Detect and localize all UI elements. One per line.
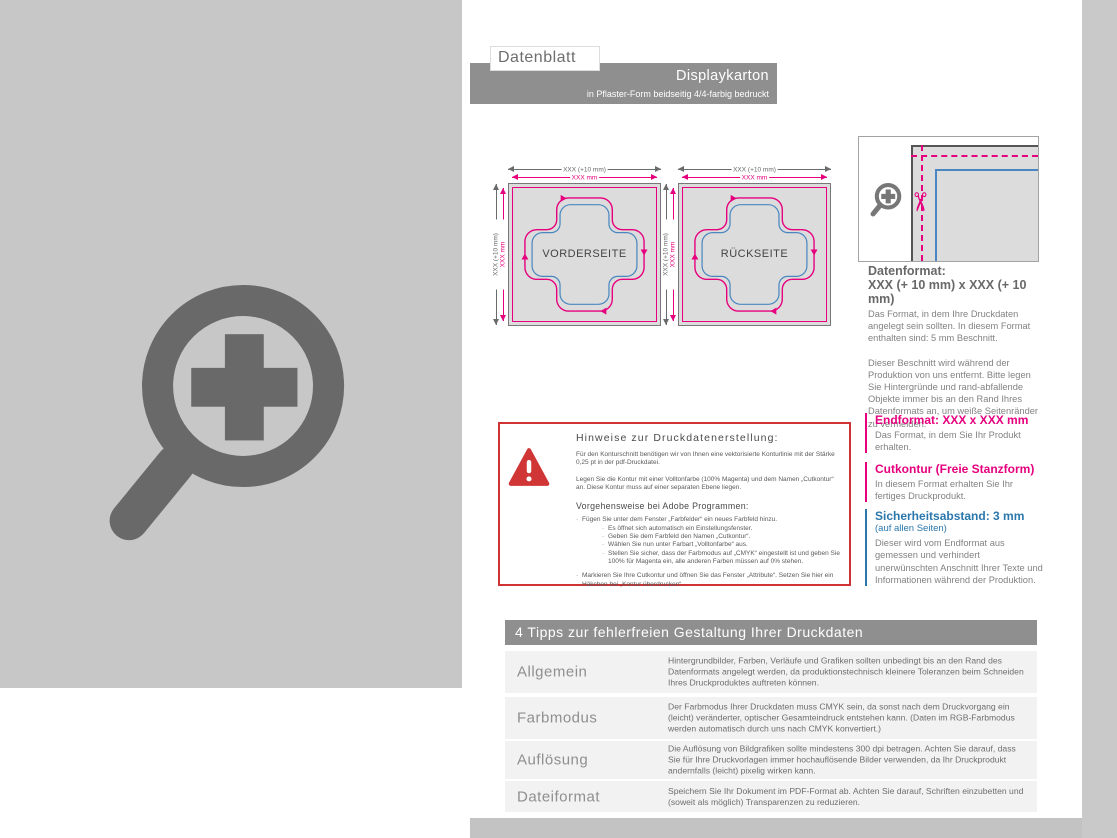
hinweise-bullet: Markieren Sie Ihre Cutkontur und öffnen … [576, 572, 843, 589]
tips-header-title: 4 Tipps zur fehlerfreien Gestaltung Ihre… [505, 620, 1037, 645]
tip-row-aufloesung: Auflösung Die Auflösung von Bildgrafiken… [505, 741, 1037, 779]
hinweise-body: Für den Konturschnitt benötigen wir von … [576, 451, 843, 589]
front-diagram: VORDERSEITE [508, 183, 661, 326]
tip-label: Auflösung [517, 752, 588, 769]
back-side-label: RÜCKSEITE [679, 248, 830, 260]
front-dim-width-outer: XXX (+10 mm) [508, 169, 661, 170]
back-diagram: RÜCKSEITE [678, 183, 831, 326]
tips-header-bar: 4 Tipps zur fehlerfreien Gestaltung Ihre… [505, 620, 1037, 645]
tip-text: Die Auflösung von Bildgrafiken sollte mi… [668, 744, 1030, 777]
tip-text: Der Farbmodus Ihrer Druckdaten muss CMYK… [668, 702, 1030, 735]
endformat-body: Das Format, in dem Sie Ihr Produkt erhal… [875, 429, 1045, 453]
datasheet-page: Datenblatt Displaykarton in Pflaster-For… [0, 0, 1117, 838]
cut-detail-box: ✂ [858, 136, 1039, 262]
hinweise-bullet: Stellen Sie sicher, dass der Farbmodus a… [602, 550, 843, 567]
tip-label: Farbmodus [517, 710, 597, 727]
front-dim-width-inner: XXX mm [512, 177, 657, 178]
datenformat-size: XXX (+ 10 mm) x XXX (+ 10 mm) [868, 278, 1038, 306]
sicherheitsabstand-heading: Sicherheitsabstand: 3 mm [875, 509, 1045, 523]
back-dim-height-inner-label: XXX mm [669, 220, 678, 290]
tip-label: Allgemein [517, 664, 587, 681]
datenblatt-label: Datenblatt [491, 47, 599, 69]
tip-text: Hintergrundbilder, Farben, Verläufe und … [668, 656, 1030, 689]
hinweise-box: Hinweise zur Druckdatenerstellung: Für d… [498, 422, 851, 586]
hinweise-subtitle: Vorgehensweise bei Adobe Programmen: [576, 502, 843, 510]
product-subtitle: in Pflaster-Form beidseitig 4/4-farbig b… [587, 89, 769, 99]
sicherheitsabstand-subheading: (auf allen Seiten) [875, 523, 1045, 535]
tip-row-allgemein: Allgemein Hintergrundbilder, Farben, Ver… [505, 651, 1037, 693]
datenblatt-label-box: Datenblatt [490, 46, 600, 71]
hinweise-bullet: Geben Sie dem Farbfeld den Namen „Cutkon… [602, 533, 843, 541]
gray-preview-panel [0, 0, 462, 688]
datenformat-heading: Datenformat: [868, 264, 1038, 278]
endformat-heading: Endformat: XXX x XXX mm [875, 413, 1045, 427]
endformat-block: Endformat: XXX x XXX mm Das Format, in d… [865, 413, 1045, 453]
back-dim-width-inner: XXX mm [682, 177, 827, 178]
hinweise-bullet: Fügen Sie unter dem Fenster „Farbfelder“… [576, 516, 843, 524]
cut-contour-line-horizontal [911, 155, 1038, 157]
front-dim-height-inner-label: XXX mm [499, 220, 508, 290]
tip-label: Dateiformat [517, 788, 600, 805]
cutkontur-heading: Cutkontur (Freie Stanzform) [875, 462, 1045, 476]
sicherheitsabstand-body: Dieser wird vom Endformat aus gemessen u… [875, 537, 1045, 586]
hinweise-title: Hinweise zur Druckdatenerstellung: [576, 432, 779, 444]
hinweise-para2: Legen Sie die Kontur mit einer Volltonfa… [576, 476, 843, 493]
hinweise-bullet: Wählen Sie nun unter Farbart „Volltonfar… [602, 541, 843, 549]
warning-triangle-icon [508, 446, 550, 488]
product-title: Displaykarton [676, 68, 769, 84]
back-dim-width-outer: XXX (+10 mm) [678, 169, 831, 170]
tip-row-dateiformat: Dateiformat Speichern Sie Ihr Dokument i… [505, 781, 1037, 812]
hinweise-para1: Für den Konturschnitt benötigen wir von … [576, 451, 843, 468]
zoom-plus-icon [95, 272, 360, 557]
hinweise-bullet: Es öffnet sich automatisch ein Einstellu… [602, 525, 843, 533]
right-margin-strip [1082, 0, 1117, 838]
endformat-line-horizontal [935, 169, 1038, 171]
tip-text: Speichern Sie Ihr Dokument im PDF-Format… [668, 786, 1030, 808]
tip-row-farbmodus: Farbmodus Der Farbmodus Ihrer Druckdaten… [505, 697, 1037, 739]
datenformat-body1: Das Format, in dem Ihre Druckdaten angel… [868, 308, 1038, 345]
datenformat-block: Datenformat: XXX (+ 10 mm) x XXX (+ 10 m… [868, 264, 1038, 430]
front-side-label: VORDERSEITE [509, 248, 660, 260]
footer-bar [470, 818, 1082, 838]
zoom-plus-icon [869, 181, 903, 219]
scissors-icon: ✂ [906, 191, 932, 213]
cutkontur-body: In diesem Format erhalten Sie Ihr fertig… [875, 478, 1045, 502]
endformat-line-vertical [935, 169, 937, 261]
sicherheitsabstand-block: Sicherheitsabstand: 3 mm (auf allen Seit… [865, 509, 1045, 586]
cutkontur-block: Cutkontur (Freie Stanzform) In diesem Fo… [865, 462, 1045, 502]
